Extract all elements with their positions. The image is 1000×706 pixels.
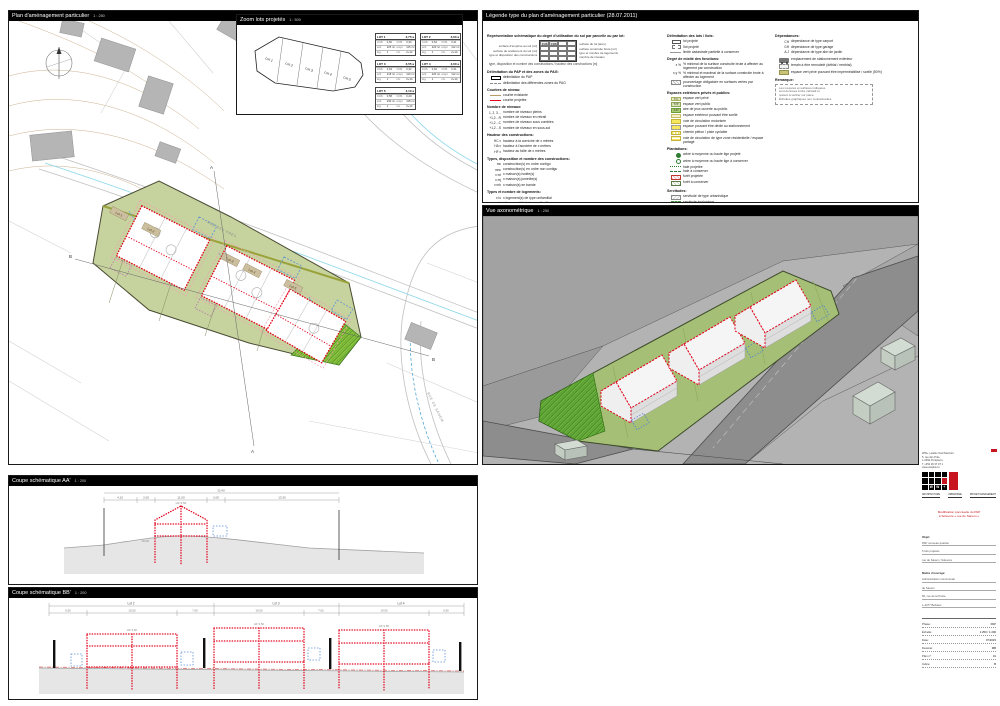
legend-swatch-treep <box>676 153 681 158</box>
legend-swatch-cell <box>487 94 503 97</box>
lot-table-cell: scb <box>376 100 386 104</box>
svg-text:Lot 2: Lot 2 <box>127 602 134 606</box>
legend-item: HA xhauteur à l'acrotère de x mètres <box>487 144 659 149</box>
svg-text:4,10: 4,10 <box>117 496 123 500</box>
legend-column-3: Dépendances:CHdépendance de type carport… <box>775 34 915 202</box>
lot-table-cell: 0,58 <box>386 95 396 99</box>
legend-swatch-olive <box>779 70 789 75</box>
legend-item: mcconstruction(s) en ordre contigu <box>487 162 659 167</box>
legend-swatch-zoneres <box>671 136 681 141</box>
legend-item-label: courbe existante <box>503 93 528 97</box>
panel-legend: Légende type du plan d'aménagement parti… <box>482 10 919 203</box>
legend-remark-box: Les mesures et surfaces indiquéessont do… <box>775 84 873 106</box>
legend-section-heading: Dépendances: <box>775 34 915 38</box>
legend-swatch-cell <box>667 153 683 158</box>
legend-abbreviation: +1,2…R <box>489 116 501 120</box>
lot-table-title: LOT 1 <box>377 35 386 39</box>
legend-swatch-cell: x lc <box>487 201 503 202</box>
legend-section: Types et nombre de logements:x lux logem… <box>487 190 659 202</box>
legend-swatch-scel <box>671 114 681 119</box>
lot-table-cell: 0,60 <box>386 41 396 45</box>
legend-item: servitude écologique <box>667 200 769 202</box>
lot-table-row: scb220 m²empr.112 m² <box>421 45 460 50</box>
legend-item-label: x maison(s) isolée(s) <box>503 172 534 176</box>
legend-abbreviation: x-y % <box>673 71 681 75</box>
lot-table: LOT 54,10 aCUS0,58COS0,29scb230 m²empr.1… <box>375 87 416 110</box>
lot-table-cell: 2+1C <box>450 78 460 82</box>
svg-text:19,50: 19,50 <box>381 609 388 613</box>
degree-utilisation-table: surface d'emprise au sol [m²]surface de … <box>489 40 659 62</box>
legend-swatch-cell: HF x <box>487 150 503 154</box>
legend-item-label: x maison(s) en bande <box>503 183 536 187</box>
legend-item: TVJespace vert privé <box>667 96 769 101</box>
legend-item: forêt projetée <box>667 174 769 180</box>
legend-item-label: emplacement de stationnement extérieur <box>791 57 852 61</box>
titleblock-section-line: de Sanem <box>922 586 996 592</box>
legend-abbreviation: +1,2…S <box>489 126 501 130</box>
discipline-word: URBANISME <box>948 494 962 498</box>
legend-item-label: délimitation des différentes zones du PA… <box>503 81 566 85</box>
legend-item: x lux logement(s) de type unifamilial <box>487 196 659 201</box>
lot-table-cell: scb <box>421 46 431 50</box>
degree-table-cell <box>540 56 549 61</box>
logo-square <box>935 472 941 478</box>
legend-swatch-cell: x mj <box>487 178 503 182</box>
legend-section-heading: Remarque: <box>775 78 915 82</box>
legend-swatch-tan <box>490 95 501 96</box>
legend-item-label: chemin piéton / piste cyclable <box>683 130 727 134</box>
lot-table-row: scb225 m²empr.115 m² <box>376 45 415 50</box>
legend-item-label: construction(s) en ordre non contigu <box>503 167 557 171</box>
legend-swatch-cell: TVJ <box>667 97 683 102</box>
titleblock-row-label: Échelle: <box>922 630 932 634</box>
lot-table-cell: niv. <box>396 78 406 82</box>
section-a-bottom: A <box>251 449 254 454</box>
project-title: Modification ponctuelle du PAPà Soleuvre… <box>922 510 996 519</box>
panel-coupe-aa-scale: 1 : 200 <box>75 476 87 486</box>
panel-axo-title-text: Vue axonométrique <box>486 206 534 216</box>
panel-coupe-aa-body: 32,40 4,10 2,00 11,00 2,00 13,30 <box>9 486 477 584</box>
titleblock-row-value: MB <box>992 646 996 650</box>
titleblock-row-value: PAP <box>991 622 996 626</box>
legend-swatch-cell: HC x <box>487 139 503 143</box>
lot-table-cell: niv. <box>441 78 451 82</box>
panel-zoom-lots: Zoom lots projetés 1 : 500 Lot 1 Lot 2 L… <box>236 14 463 115</box>
logo-square <box>929 478 935 484</box>
degree-table-cell <box>549 56 558 61</box>
titleblock-section-line: L-4477 Belvaux <box>922 603 996 609</box>
legend-item-label: forêt à conserver <box>683 180 708 184</box>
legend-item-label: espace extérieur pouvant être scellé <box>683 113 737 117</box>
legend-section: Types, disposition et nombre des constru… <box>487 157 659 188</box>
legend-item-label: hauteur à l'acrotère de x mètres <box>503 144 551 148</box>
legend-item: espace extérieur pouvant être scellé <box>667 113 769 118</box>
legend-item: haie projetée <box>667 165 769 169</box>
lot-table-cell: niv. <box>396 51 406 55</box>
lot-table-cell: CUS <box>376 41 386 45</box>
logo-square <box>922 472 928 478</box>
legend-item: CHdépendance de type carport <box>775 39 915 44</box>
legend-swatch-cell <box>775 70 791 75</box>
lot-tables: LOT 13,75 aCUS0,60COS0,30scb225 m²empr.1… <box>375 33 461 110</box>
legend-item-label: x maison(s) jumelée(s) <box>503 177 537 181</box>
lot-table-cell: CUS <box>376 68 386 72</box>
lot-table-title: LOT 2 <box>422 35 431 39</box>
degree-table-right-label: nombre de niveaux <box>579 56 618 59</box>
legend-item-label: dépendance de type abri de jardin <box>791 50 842 54</box>
section-b-left: B <box>69 254 72 259</box>
degree-table-left-label: type et disposition des constructions <box>489 54 537 57</box>
lot-table-row: CUS0,58COS0,29 <box>376 94 415 99</box>
legend-section-heading: Degré de mixité des fonctions: <box>667 57 769 61</box>
lot-table-cell: 0,29 <box>405 95 415 99</box>
panel-axo-scale: 1 : 250 <box>538 206 550 216</box>
legend-swatch-cell <box>667 125 683 130</box>
legend-swatch-cell <box>667 195 683 200</box>
drawing-sheet: { "panels": { "plan": {"title": "Plan d'… <box>0 0 1000 706</box>
legend-item: x lcx logement(s) de type collectif <box>487 201 659 202</box>
legend-item: +1,2…Cnombre de niveaux sous combles <box>487 120 659 125</box>
legend-item-label: courbe projetée <box>503 98 527 102</box>
legend-item: servitude de type urbanistique <box>667 194 769 200</box>
legend-swatch-hatchy <box>671 80 681 85</box>
legend-item-label: espace vert privé pouvant être imperméab… <box>791 70 882 74</box>
lot-table-cell: 0,32 <box>405 68 415 72</box>
titleblock-row-label: Plan n°: <box>922 654 932 658</box>
legend-section-heading: Espaces extérieurs privés et publics: <box>667 91 769 95</box>
lot-table-area: 4,10 a <box>406 89 414 93</box>
legend-abbreviation: HF x <box>494 150 501 154</box>
logo-square: + <box>942 485 948 491</box>
coupe-bb-lot-labels: Lot 2 Lot 3 Lot 4 <box>127 602 404 606</box>
coupe-aa-dependance <box>213 526 227 536</box>
legend-swatch-cell <box>667 175 683 180</box>
lot-table-cell: COS <box>396 95 406 99</box>
lot-table-cell: COS <box>441 68 451 72</box>
legend-swatch-cell: A.J <box>775 50 791 54</box>
panel-coupe-aa-title-text: Coupe schématique AA' <box>12 476 71 486</box>
panel-coupe-bb-scale: 1 : 200 <box>75 588 87 598</box>
legend-item-label: hauteur à la corniche de x mètres <box>503 139 553 143</box>
firm-address: WW+ | atelier d'architecture5, rue des P… <box>922 452 996 470</box>
panel-plan-title-text: Plan d'aménagement particulier <box>12 11 89 21</box>
titleblock-section-line: 60, rue de la Poste <box>922 594 996 600</box>
lot-table-cell: 2+1C <box>450 51 460 55</box>
legend-item-label: espace pouvant être dédié au stationneme… <box>683 124 750 128</box>
titleblock-section: Maître d'ouvrage:Administration communal… <box>922 571 996 608</box>
legend-section-heading: Types, disposition et nombre des constru… <box>487 157 659 161</box>
lot-table-cell: 0,62 <box>431 68 441 72</box>
lot-table-cell: empr. <box>396 73 406 77</box>
lot-table-cell: 118 m² <box>405 100 415 104</box>
lot-table-cell: 218 m² <box>386 73 396 77</box>
legend-swatch-haiec <box>670 171 681 172</box>
legend-item-label: % minimal et maximal de la surface const… <box>683 71 769 79</box>
legend-item: chemin piéton / piste cyclable <box>667 130 769 135</box>
legend-swatch-cell <box>487 98 503 101</box>
legend-swatch-cell: GH <box>775 45 791 49</box>
legend-abbreviation: +1,2…C <box>489 121 501 125</box>
legend-item: limite cadastrale partielle à conserver <box>667 50 769 54</box>
legend-section: Courbes de niveau:courbe existantecourbe… <box>487 88 659 102</box>
legend-section-heading: Servitudes: <box>667 189 769 193</box>
legend-swatch-tvj: TVJ <box>671 97 681 102</box>
lot-table: LOT 33,55 aCUS0,63COS0,32scb218 m²empr.1… <box>375 60 416 83</box>
lot-table-cell: 225 m² <box>386 46 396 50</box>
title-block: WW+ | atelier d'architecture5, rue des P… <box>922 452 996 702</box>
legend-item: haie à conserver <box>667 169 769 173</box>
legend-remark-line: Échelles graphiques non contractuelles. <box>779 98 869 102</box>
legend-swatch-cell <box>667 45 683 49</box>
lot-table-cell: COS <box>396 41 406 45</box>
lot-table-row: log.1niv.2+1C <box>376 50 415 55</box>
lot-table-area: 3,60 a <box>451 62 459 66</box>
titleblock-row: Date:07/2023 <box>922 638 996 643</box>
lot-table-cell: 2+1C <box>405 51 415 55</box>
legend-item: arbre à moyenne ou haute tige projeté <box>667 152 769 158</box>
panel-zoom-body: Lot 1 Lot 2 Lot 3 Lot 4 Lot 5 LOT 13,75 … <box>237 25 462 114</box>
axonometric-drawing <box>483 216 918 464</box>
legend-section: Hauteur des constructions:HC xhauteur à … <box>487 133 659 153</box>
legend-column-2: Délimitation des lots / îlots:lot projet… <box>667 34 769 202</box>
legend-abbreviation: x lu <box>496 196 501 200</box>
lot-table-cell: 112 m² <box>450 46 460 50</box>
logo-square <box>942 472 948 478</box>
panel-coupe-aa: Coupe schématique AA' 1 : 200 32,40 4,10… <box>8 475 478 585</box>
coupe-aa-dimensions <box>104 493 339 503</box>
svg-text:19,50: 19,50 <box>129 609 136 613</box>
legend-item: GHdépendance de type garage <box>775 45 915 50</box>
svg-text:19,50: 19,50 <box>256 609 263 613</box>
coupe-aa-dim-labels: 32,40 4,10 2,00 11,00 2,00 13,30 <box>117 489 286 500</box>
panel-legend-body: Représentation schématique du degré d'ut… <box>483 21 918 202</box>
lot-table-row: scb230 m²empr.118 m² <box>376 99 415 104</box>
panel-zoom-title: Zoom lots projetés 1 : 500 <box>237 15 462 25</box>
svg-text:11,00: 11,00 <box>177 496 185 500</box>
firm-disciplines: ARCHITECTUREURBANISMEPROJET MANAGEMENT <box>922 494 996 498</box>
legend-item-label: haie à conserver <box>683 169 708 173</box>
legend-item: HC xhauteur à la corniche de x mètres <box>487 139 659 144</box>
titleblock-row-value: B <box>994 662 996 666</box>
legend-swatch-pieton <box>671 125 681 130</box>
lot-table-cell: scb <box>376 73 386 77</box>
legend-item-label: lot projeté <box>683 39 698 43</box>
logo-square <box>922 485 928 491</box>
legend-abbreviation: x lc <box>496 201 501 202</box>
legend-item: lot projeté <box>667 39 769 44</box>
svg-text:6,50: 6,50 <box>65 609 71 613</box>
legend-item-label: pourcentage obligatoire en surfaces vert… <box>683 80 769 88</box>
legend-item: voie de circulation de type zone résiden… <box>667 136 769 144</box>
legend-item: mncconstruction(s) en ordre non contigu <box>487 167 659 172</box>
svg-text:6,50: 6,50 <box>443 609 449 613</box>
legend-item: terrain à être remodelé (déblai / rembla… <box>775 63 915 69</box>
svg-text:7,00: 7,00 <box>192 609 198 613</box>
legend-section-heading: Courbes de niveau: <box>487 88 659 92</box>
legend-swatch-cell <box>667 181 683 186</box>
lot-table-cell: 0,31 <box>450 41 460 45</box>
titleblock-section-line: rue de Sanem, Soleuvre <box>922 558 996 564</box>
titleblock-section-line: PAP nouveau quartier <box>922 541 996 547</box>
legend-swatch-chem <box>671 131 681 136</box>
panel-plan-scale: 1 : 250 <box>93 11 105 21</box>
lot-table-cell: log. <box>376 51 386 55</box>
panel-legend-title-text: Légende type du plan d'aménagement parti… <box>486 11 637 21</box>
legend-abbreviation: HA x <box>494 144 501 148</box>
legend-swatch-cell <box>667 50 683 53</box>
legend-swatch-cell: +1,2…S <box>487 126 503 130</box>
section-b-right: B <box>432 357 435 362</box>
legend-item-label: terrain à être remodelé (déblai / rembla… <box>791 63 852 67</box>
project-title-line: à Soleuvre « rue de Sanem » <box>922 514 996 519</box>
lot-table-cell: empr. <box>396 100 406 104</box>
legend-swatch-cell <box>667 119 683 124</box>
legend-swatch-cell: x mi <box>487 173 503 177</box>
legend-swatch-ajo: AJO <box>671 108 681 113</box>
panel-axo-title: Vue axonométrique 1 : 250 <box>483 206 918 216</box>
legend-item: espace vert privé pouvant être imperméab… <box>775 70 915 76</box>
legend-item: 1, 2, 3…nombre de niveaux pleins <box>487 110 659 115</box>
legend-swatch-cad <box>670 52 681 53</box>
legend-swatch-graydash <box>490 83 501 84</box>
zoom-lots-drawing: Lot 1 Lot 2 Lot 3 Lot 4 Lot 5 <box>237 25 372 114</box>
coupe-aa-drawing: 32,40 4,10 2,00 11,00 2,00 13,30 <box>9 486 477 584</box>
legend-swatch-cell: x mb <box>487 183 503 187</box>
legend-abbreviation: A.J <box>784 50 789 54</box>
legend-section: Espaces extérieurs privés et publics:TVJ… <box>667 91 769 144</box>
discipline-word: PROJET MANAGEMENT <box>970 494 996 498</box>
panel-coupe-bb: Coupe schématique BB' 1 : 200 Lot 2 Lot … <box>8 587 478 700</box>
lot-table-row: CUS0,62COS0,31 <box>421 67 460 72</box>
titleblock-row-label: Indice: <box>922 662 930 666</box>
lot-table-cell: log. <box>376 105 386 109</box>
legend-swatch-cell: 1, 2, 3… <box>487 111 503 115</box>
legend-item: +1,2…Rnombre de niveaux en retrait <box>487 115 659 120</box>
legend-item: courbe projetée <box>487 98 659 102</box>
lot-table-cell: log. <box>421 78 431 82</box>
logo-square <box>929 472 935 478</box>
titleblock-row: Dessiné:MB <box>922 646 996 651</box>
logo-square <box>922 478 928 484</box>
legend-swatch-cell <box>667 170 683 172</box>
lot-table-row: CUS0,60COS0,30 <box>376 40 415 45</box>
lot-table-cell: niv. <box>441 51 451 55</box>
legend-item-label: nombre de niveaux en retrait <box>503 115 546 119</box>
legend-section-heading: Hauteur des constructions: <box>487 133 659 137</box>
legend-swatch-voie <box>671 119 681 124</box>
lot-table-cell: scb <box>376 46 386 50</box>
coupe-bb-posts <box>53 638 461 671</box>
legend-item-label: servitude écologique <box>683 200 714 202</box>
lot-table-row: log.1niv.2+1C <box>376 104 415 109</box>
degree-table-cell <box>567 56 576 61</box>
lot-table-row: CUS0,63COS0,32 <box>376 67 415 72</box>
legend-section-heading: Plantations: <box>667 147 769 151</box>
legend-item-label: arbre à moyenne ou haute tige à conserve… <box>683 159 748 163</box>
legend-swatch-cell: HA x <box>487 144 503 148</box>
legend-item: délimitation du PAP <box>487 75 659 80</box>
legend-item: x %% minimal de la surface construite br… <box>667 62 769 70</box>
legend-item-label: espace vert privé <box>683 96 709 100</box>
legend-item: TVPespace vert public <box>667 102 769 107</box>
legend-item: HF xhauteur au faîte de x mètres <box>487 149 659 154</box>
legend-item-label: espace vert public <box>683 102 710 106</box>
legend-item: x-y %% minimal et maximal de la surface … <box>667 71 769 79</box>
discipline-word: ARCHITECTURE <box>922 494 940 498</box>
titleblock-row: Échelle:1:250 / 1:200 <box>922 630 996 635</box>
lot-table-cell: log. <box>376 78 386 82</box>
logo-square: W <box>929 485 935 491</box>
legend-abbreviation: x mj <box>495 178 501 182</box>
panel-axo-body <box>483 216 918 464</box>
svg-text:HF 9,50: HF 9,50 <box>127 628 137 632</box>
legend-swatch-cell <box>487 81 503 84</box>
lot-table-cell: CUS <box>421 41 431 45</box>
svg-text:2,00: 2,00 <box>143 496 149 500</box>
svg-text:±0,00: ±0,00 <box>142 539 150 543</box>
legend-swatch-cell: AJO <box>667 108 683 113</box>
legend-section: Représentation schématique du degré d'ut… <box>487 34 659 67</box>
legend-section: Délimitation des lots / îlots:lot projet… <box>667 34 769 54</box>
legend-item: îlot projeté <box>667 45 769 50</box>
legend-item-label: hauteur au faîte de x mètres <box>503 149 545 153</box>
legend-item: emplacement de stationnement extérieur <box>775 57 915 63</box>
panel-axonometric: Vue axonométrique 1 : 250 <box>482 205 919 465</box>
logo-square <box>935 478 941 484</box>
legend-swatch-treec <box>676 159 681 164</box>
legend-swatch-cell <box>667 136 683 141</box>
legend-swatch-cell: x % <box>667 63 683 67</box>
panel-zoom-scale: 1 : 500 <box>289 15 301 25</box>
panel-coupe-bb-body: Lot 2 Lot 3 Lot 4 6,50 19,50 7,00 19,50 … <box>9 598 477 699</box>
legend-swatch-foretp <box>671 175 681 180</box>
svg-text:Lot 4: Lot 4 <box>397 602 404 606</box>
degree-table-left-labels: surface d'emprise au sol [m²]surface de … <box>489 45 537 57</box>
legend-note: type, disposition et nombre des construc… <box>489 63 659 67</box>
legend-swatch-cell <box>775 64 791 69</box>
svg-text:32,40: 32,40 <box>217 489 225 493</box>
panel-zoom-title-text: Zoom lots projetés <box>240 15 285 25</box>
legend-item-label: voie de circulation de type zone résiden… <box>683 136 769 144</box>
legend-item-label: aire de jeux ouverte au public <box>683 107 727 111</box>
legend-swatch-cell <box>487 76 503 80</box>
svg-text:HF 9,50: HF 9,50 <box>254 622 264 626</box>
legend-item-label: arbre à moyenne ou haute tige projeté <box>683 152 741 156</box>
legend-item-label: x logement(s) de type unifamilial <box>503 196 552 200</box>
legend-item: pourcentage obligatoire en surfaces vert… <box>667 80 769 88</box>
legend-item: courbe existante <box>487 93 659 97</box>
lot-table-cell: 0,30 <box>405 41 415 45</box>
lot-table-cell: 2+1C <box>405 78 415 82</box>
legend-swatch-cell: CH <box>775 40 791 44</box>
legend-item-label: x logement(s) de type collectif <box>503 201 548 202</box>
svg-text:HF 9,50: HF 9,50 <box>176 501 187 505</box>
legend-section-heading: Types et nombre de logements: <box>487 190 659 194</box>
legend-swatch-cell: mnc <box>487 168 503 172</box>
titleblock-row-value: 1:250 / 1:200 <box>980 630 996 634</box>
lot-table-area: 3,55 a <box>406 62 414 66</box>
legend-item-label: haie projetée <box>683 165 703 169</box>
lot-table-cell: 220 m² <box>431 73 441 77</box>
legend-swatch-cell <box>775 58 791 63</box>
titleblock-row: Plan n°:01 <box>922 654 996 659</box>
lot-table-cell: 1 <box>386 78 396 82</box>
legend-item: x mbx maison(s) en bande <box>487 183 659 188</box>
lot-table-cell: empr. <box>441 46 451 50</box>
svg-text:13,30: 13,30 <box>278 496 286 500</box>
legend-item-label: délimitation du PAP <box>503 75 532 79</box>
panel-legend-title: Légende type du plan d'aménagement parti… <box>483 11 918 21</box>
